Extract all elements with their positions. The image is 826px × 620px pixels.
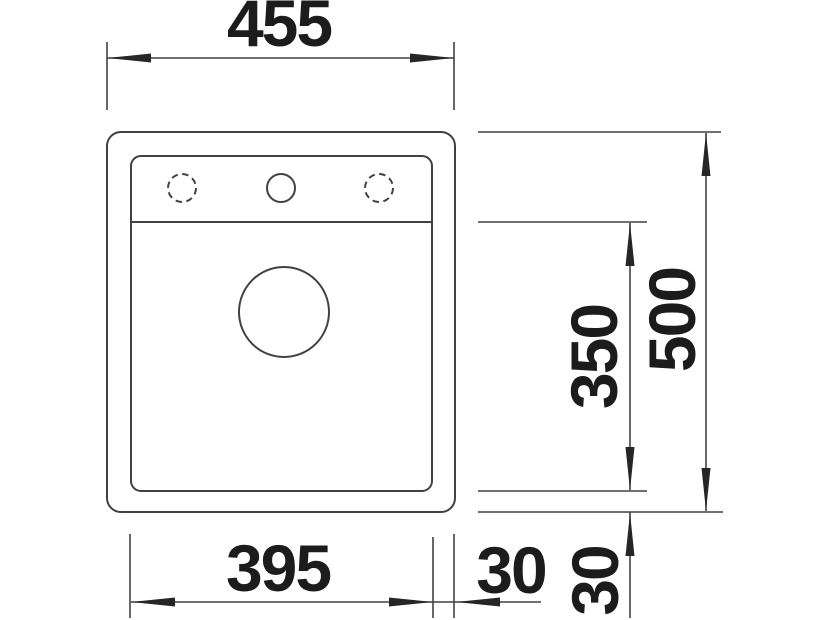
sink-outer-edge — [107, 132, 455, 512]
arrowhead-right — [410, 54, 454, 63]
arrowhead-up — [626, 223, 635, 266]
drain-outline — [239, 267, 329, 357]
dim-label-bowl-depth: 350 — [561, 305, 627, 409]
arrowhead-left — [107, 54, 151, 63]
dim-label-overall-depth: 500 — [639, 268, 705, 372]
dim-label-bowl-width: 395 — [226, 535, 330, 601]
tap-hole-center — [267, 174, 295, 202]
dim-label-right-offset: 30 — [476, 537, 545, 603]
arrowhead-down — [702, 468, 711, 511]
bowl-rim-outline — [131, 156, 432, 491]
arrowhead-down — [626, 447, 635, 490]
technical-drawing-page: 455 500 350 395 30 30 — [0, 0, 826, 620]
tap-hole-left-dashed — [168, 174, 196, 202]
arrowhead-up — [702, 133, 711, 176]
tap-hole-right-dashed — [365, 174, 393, 202]
sink-outline — [107, 132, 455, 512]
dim-label-overall-width: 455 — [227, 0, 331, 56]
arrowhead-left — [131, 598, 175, 607]
arrowhead-right — [389, 598, 433, 607]
dim-label-bottom-offset: 30 — [562, 546, 628, 615]
